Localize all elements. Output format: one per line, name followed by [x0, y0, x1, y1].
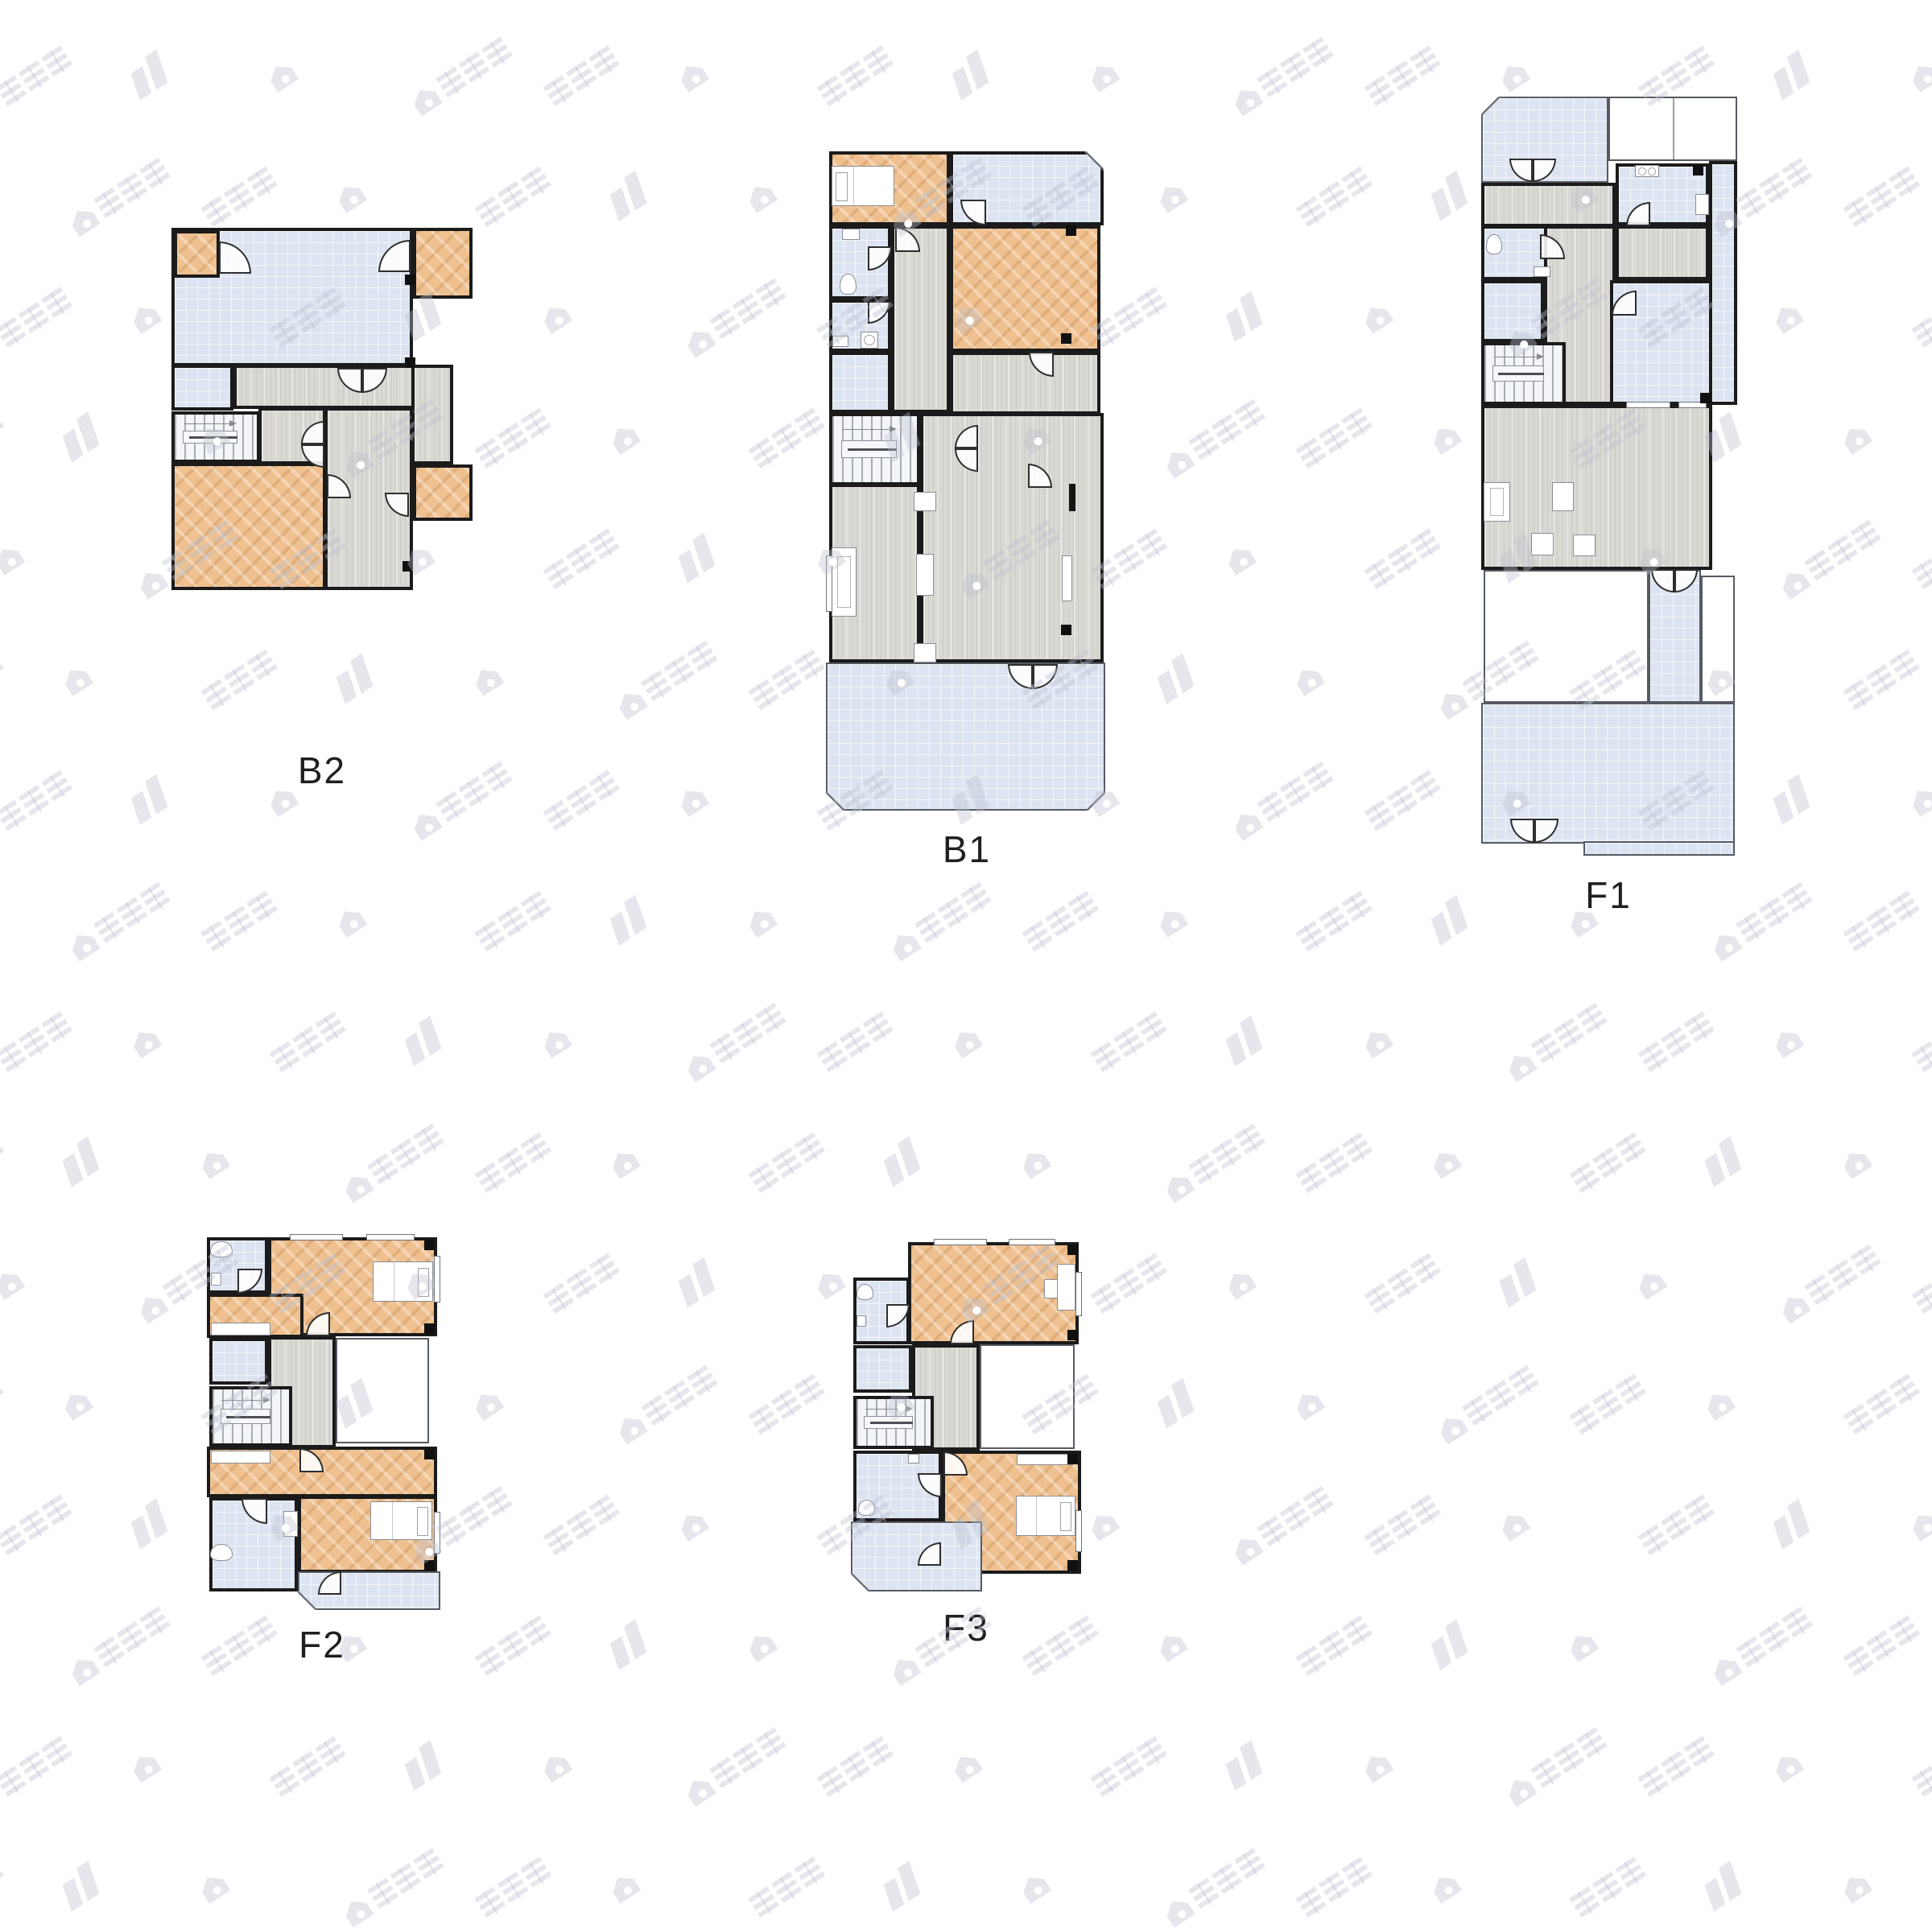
furniture-cabinet	[842, 229, 860, 240]
furniture-cabinet	[908, 1454, 919, 1463]
window-mark	[290, 1234, 343, 1241]
wall-column-marker	[1067, 1330, 1078, 1340]
furniture-sofa	[832, 547, 857, 617]
wall-column-marker	[424, 1240, 435, 1250]
furniture-stove	[1635, 165, 1659, 177]
wall-stub	[1069, 484, 1075, 511]
bed-pillow	[1060, 1502, 1071, 1532]
furniture-toilet	[1486, 234, 1502, 254]
bed-pillow	[417, 1507, 429, 1535]
furniture-cabinet	[914, 492, 936, 511]
wall-column-marker	[1061, 625, 1071, 635]
floor-label-f2: F2	[299, 1623, 345, 1666]
furniture-cabinet	[1695, 194, 1709, 215]
furniture-cabinet	[1062, 555, 1072, 601]
chamfer-corner	[1086, 791, 1105, 811]
chamfer-corner	[1481, 97, 1501, 116]
wall-column-marker	[424, 1323, 435, 1334]
wall-column-marker	[1067, 1560, 1078, 1571]
chamfer-corner	[851, 1572, 870, 1591]
wall-column-marker	[1700, 393, 1711, 403]
room-f3-terrace	[851, 1521, 982, 1591]
furniture-cabinet	[283, 1511, 298, 1537]
plan-f3: F3	[0, 0, 1932, 1932]
furniture-bed	[373, 1261, 433, 1302]
bed-pillow	[418, 1268, 429, 1298]
window-mark	[934, 1239, 987, 1245]
stair-rail	[870, 1422, 913, 1424]
wall-column-marker	[1693, 165, 1703, 175]
floorplan-sheet: B2B1F1F2F3	[0, 0, 1932, 1932]
furniture-toilet	[858, 1500, 875, 1516]
wall-column-marker	[424, 1449, 435, 1459]
room-f3-storage	[853, 1345, 912, 1393]
furniture-bed	[370, 1501, 432, 1540]
floor-label-f3: F3	[943, 1606, 989, 1649]
furniture-cabinet	[857, 1315, 866, 1327]
furniture-bed	[832, 166, 894, 206]
bed-pillow	[836, 172, 848, 202]
furniture-bed	[1016, 1496, 1075, 1536]
furniture-cabinet	[1573, 535, 1596, 556]
furniture-cabinet	[211, 1451, 270, 1463]
wall-column-marker	[1067, 1454, 1078, 1464]
window-mark	[366, 1234, 415, 1241]
furniture-cabinet	[1044, 1279, 1058, 1298]
wall-column-marker	[405, 275, 415, 285]
floorplans-layer: B2B1F1F2F3	[0, 0, 1932, 1932]
furniture-cabinet	[211, 1273, 221, 1286]
wall-column-marker	[1067, 1245, 1078, 1255]
window-mark	[1626, 402, 1670, 408]
chamfer-corner	[298, 1591, 317, 1610]
furniture-cabinet	[1534, 266, 1550, 277]
furniture-washer	[861, 332, 878, 349]
floor-label-b2: B2	[298, 749, 346, 792]
furniture-toilet	[210, 1241, 233, 1257]
floor-label-b1: B1	[943, 828, 991, 871]
furniture-cabinet	[211, 1323, 270, 1335]
furniture-cabinet	[832, 336, 848, 347]
wall-column-marker	[402, 561, 413, 572]
wall-stub	[1673, 98, 1674, 159]
furniture-cabinet	[916, 554, 934, 596]
window-mark	[1009, 1239, 1055, 1245]
chamfer-corner	[1084, 151, 1104, 171]
window-mark	[434, 1256, 440, 1302]
furniture-cabinet	[1057, 1264, 1075, 1311]
room-f3-void	[980, 1344, 1075, 1449]
wall-column-marker	[405, 357, 415, 368]
chamfer-corner	[826, 791, 845, 811]
window-mark	[1075, 1510, 1082, 1552]
window-mark	[826, 555, 832, 612]
furniture-cabinet	[1552, 482, 1574, 511]
stairs-f3	[853, 1396, 934, 1449]
stair-direction-arrow	[865, 1409, 911, 1410]
wall-column-marker	[424, 1560, 435, 1571]
window-mark	[1075, 1272, 1082, 1316]
furniture-cabinet	[1017, 1454, 1073, 1465]
furniture-toilet	[840, 274, 857, 295]
furniture-sofa	[1484, 482, 1510, 522]
wall-column-marker	[1066, 225, 1076, 236]
furniture-toilet	[857, 1284, 873, 1300]
furniture-cabinet	[1531, 533, 1554, 555]
furniture-cabinet	[914, 643, 936, 663]
wall-column-marker	[1061, 333, 1071, 344]
window-mark	[434, 1512, 440, 1554]
furniture-toilet	[210, 1544, 233, 1561]
floor-label-f1: F1	[1585, 873, 1632, 917]
